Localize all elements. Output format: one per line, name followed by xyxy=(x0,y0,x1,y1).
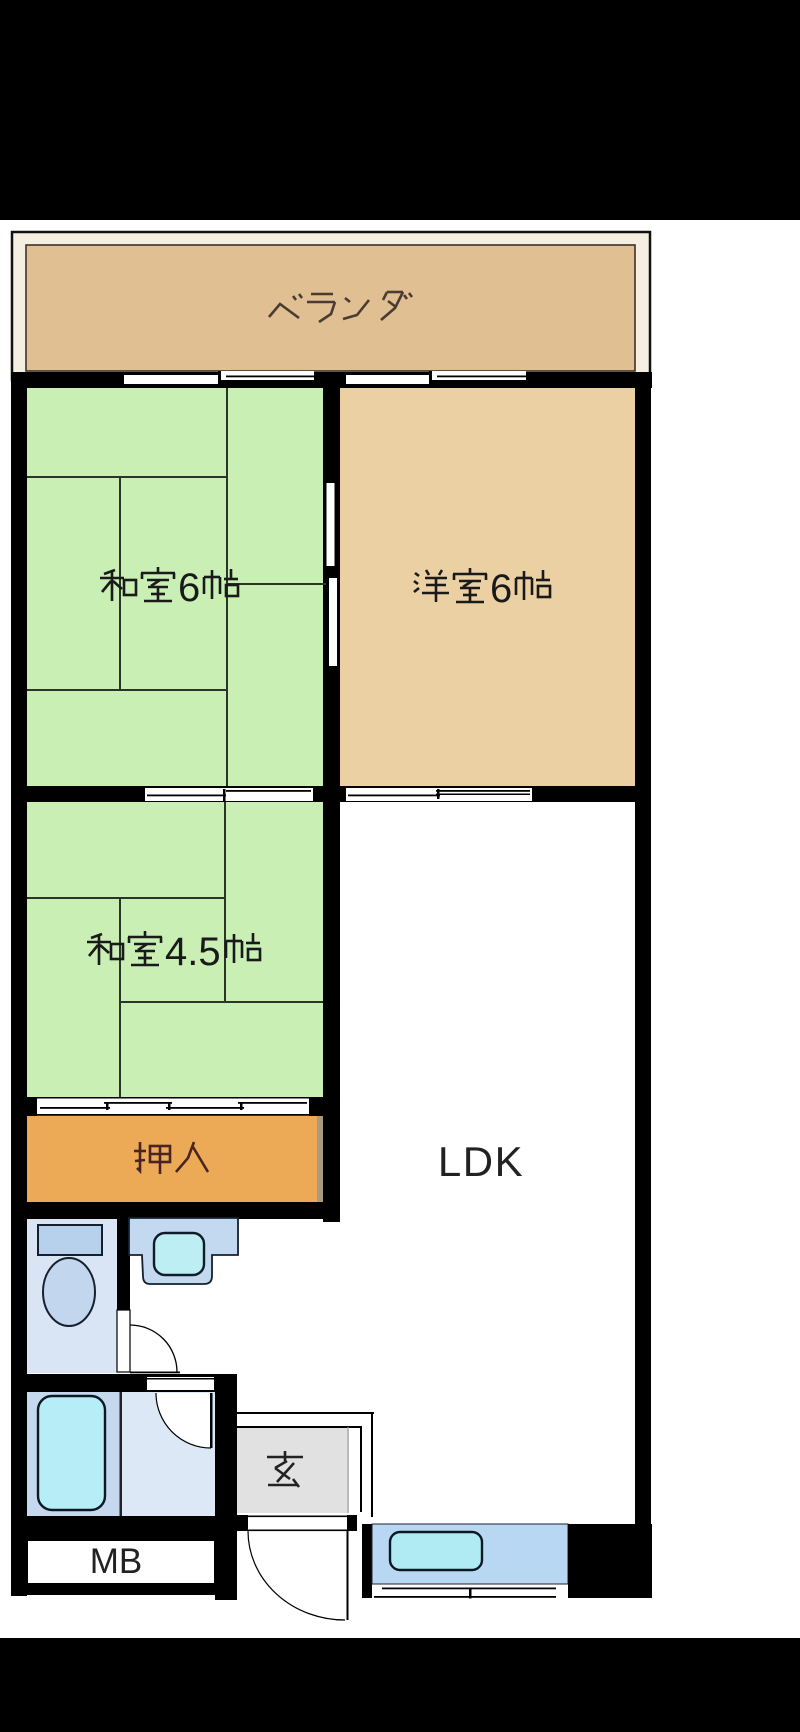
svg-text:4.5: 4.5 xyxy=(165,930,221,974)
svg-text:6: 6 xyxy=(490,567,512,611)
svg-text:6: 6 xyxy=(178,566,200,610)
svg-text:MB: MB xyxy=(90,1542,143,1581)
svg-text:LDK: LDK xyxy=(438,1138,524,1185)
